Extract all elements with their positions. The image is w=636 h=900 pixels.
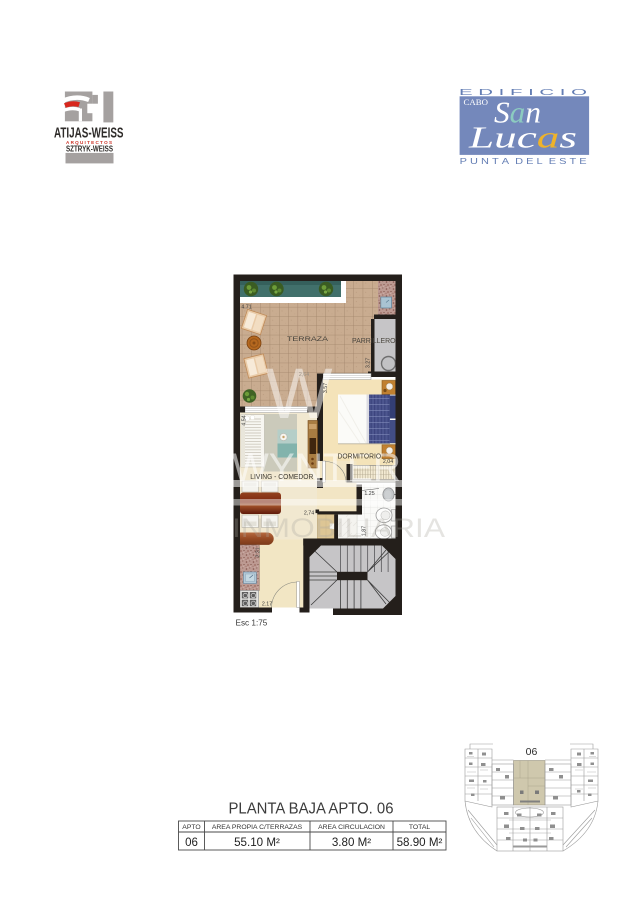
svg-text:Lucas: Lucas bbox=[468, 120, 577, 155]
svg-text:INMOBILIARIA: INMOBILIARIA bbox=[232, 513, 445, 543]
svg-text:AREA PROPIA C/TERRAZAS: AREA PROPIA C/TERRAZAS bbox=[212, 824, 303, 831]
svg-text:DORMITORIO: DORMITORIO bbox=[338, 451, 382, 460]
svg-text:2,04: 2,04 bbox=[383, 459, 393, 465]
svg-text:AREA CIRCULACION: AREA CIRCULACION bbox=[318, 824, 385, 831]
svg-text:2,74: 2,74 bbox=[304, 511, 314, 517]
svg-text:2.17: 2.17 bbox=[262, 602, 272, 608]
svg-text:2,64: 2,64 bbox=[299, 372, 309, 378]
svg-text:06: 06 bbox=[185, 837, 198, 849]
svg-text:P U N T A D E L E S T E: P U N T A D E L E S T E bbox=[460, 157, 587, 166]
svg-text:W: W bbox=[265, 355, 332, 434]
svg-text:06: 06 bbox=[526, 746, 538, 758]
svg-text:SZTRYK-WEISS: SZTRYK-WEISS bbox=[66, 143, 113, 153]
svg-text:LIVING - COMEDOR: LIVING - COMEDOR bbox=[250, 472, 313, 481]
svg-text:58.90 M²: 58.90 M² bbox=[397, 836, 443, 849]
svg-text:PLANTA BAJA APTO. 06: PLANTA BAJA APTO. 06 bbox=[229, 801, 394, 818]
svg-text:4.54: 4.54 bbox=[242, 415, 248, 425]
svg-text:1.25: 1.25 bbox=[364, 491, 374, 497]
svg-text:3.80 M²: 3.80 M² bbox=[332, 836, 371, 849]
svg-text:TOTAL: TOTAL bbox=[409, 824, 430, 831]
svg-text:Esc 1:75: Esc 1:75 bbox=[236, 619, 268, 628]
svg-text:55.10 M²: 55.10 M² bbox=[234, 836, 280, 849]
svg-text:3.57: 3.57 bbox=[323, 383, 329, 393]
svg-text:2.21: 2.21 bbox=[256, 547, 262, 557]
svg-text:1,87: 1,87 bbox=[361, 526, 367, 536]
svg-text:CABO: CABO bbox=[464, 97, 489, 107]
svg-text:3.27: 3.27 bbox=[366, 358, 372, 368]
svg-text:TERRAZA: TERRAZA bbox=[287, 336, 329, 343]
svg-text:PARRILLERO: PARRILLERO bbox=[352, 338, 396, 345]
svg-text:4.71: 4.71 bbox=[241, 305, 251, 311]
svg-text:APTO: APTO bbox=[182, 824, 200, 831]
